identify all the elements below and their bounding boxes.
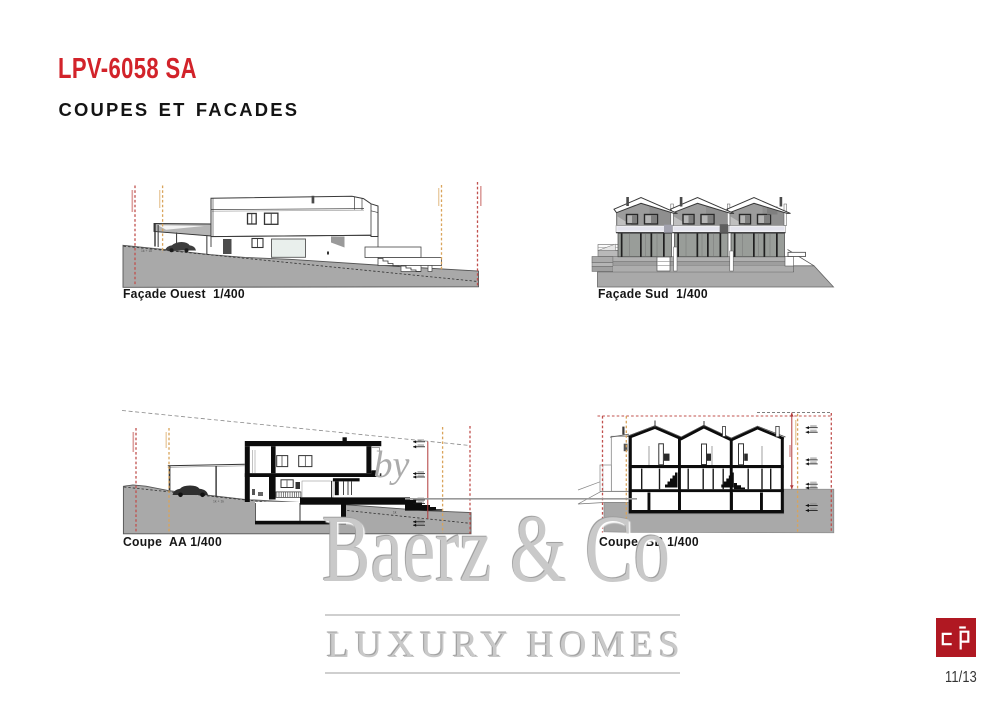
svg-text:1k + 1k: 1k + 1k (213, 500, 224, 504)
svg-text:1k + 1k: 1k + 1k (141, 249, 152, 253)
